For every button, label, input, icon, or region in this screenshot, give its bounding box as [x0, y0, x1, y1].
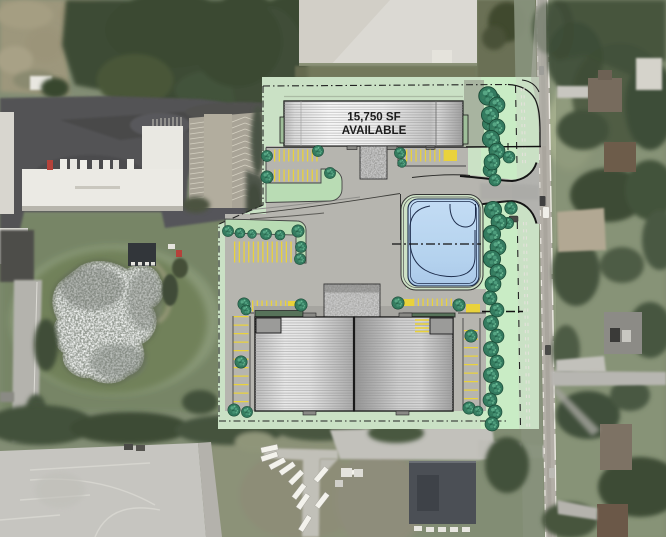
svg-text:AVAILABLE: AVAILABLE: [342, 124, 407, 137]
svg-text:15,750 SF: 15,750 SF: [347, 111, 401, 124]
